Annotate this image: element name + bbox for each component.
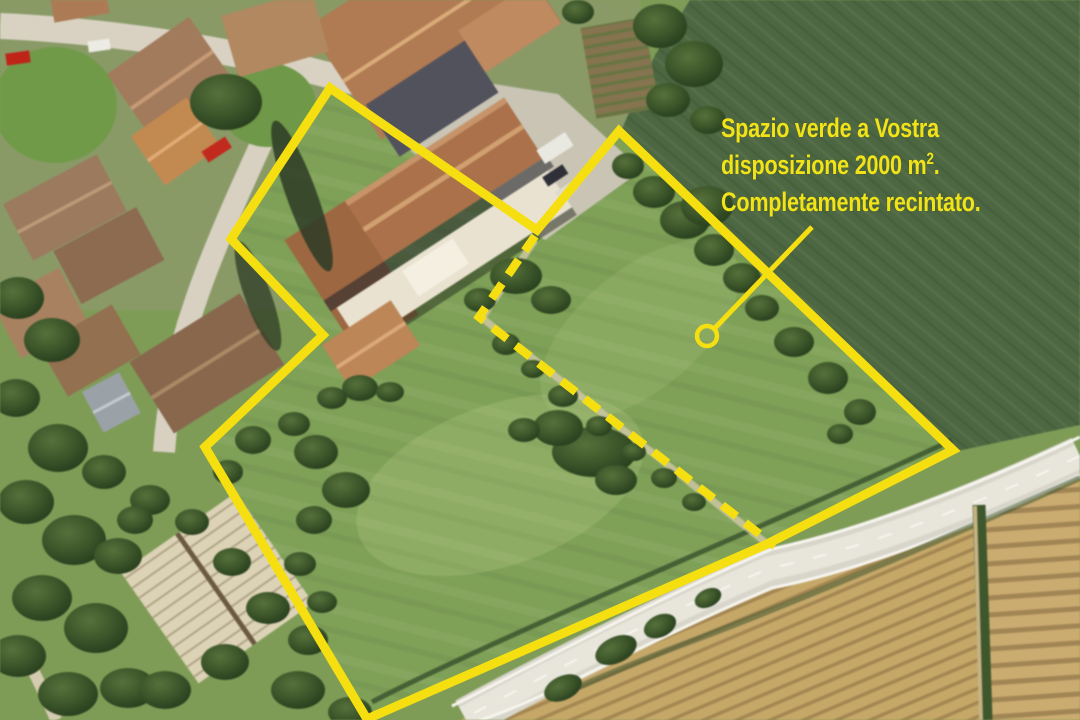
fence-divider-dashed-line (479, 236, 775, 546)
annotated-aerial-photo: Spazio verde a Vostra disposizione 2000 … (0, 0, 1080, 720)
label-line-2: disposizione 2000 m2. (721, 147, 993, 184)
label-line-2-period: . (934, 150, 940, 180)
label-line-3: Completamente recintato. (721, 184, 993, 221)
callout-marker-circle (697, 326, 717, 346)
label-line-2-text: disposizione 2000 m (721, 150, 927, 180)
callout-leader-line (714, 227, 812, 329)
area-superscript: 2 (927, 149, 934, 168)
annotation-label: Spazio verde a Vostra disposizione 2000 … (721, 110, 993, 221)
annotation-overlay (0, 0, 1080, 720)
label-line-1: Spazio verde a Vostra (721, 110, 993, 147)
